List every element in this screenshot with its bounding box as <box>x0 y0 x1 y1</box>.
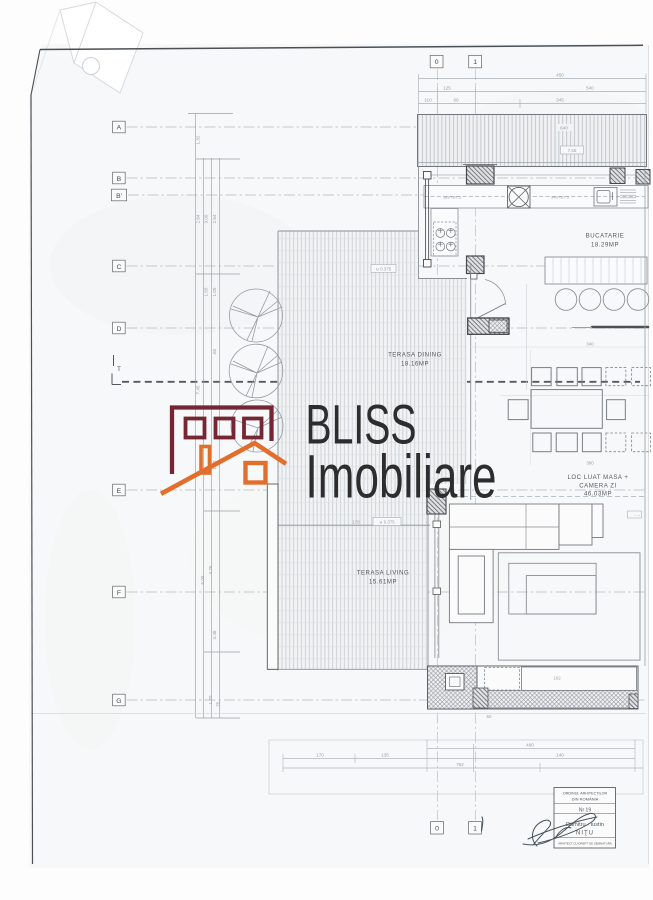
svg-text:B: B <box>117 176 122 183</box>
svg-text:− −: − − <box>635 512 641 517</box>
svg-text:0: 0 <box>435 59 439 66</box>
svg-text:C: C <box>116 264 121 271</box>
svg-text:1.05: 1.05 <box>212 287 217 296</box>
svg-text:540: 540 <box>586 86 594 91</box>
svg-text:18.29MP: 18.29MP <box>591 243 619 249</box>
svg-text:F: F <box>117 590 121 597</box>
svg-text:0: 0 <box>435 825 439 832</box>
svg-text:A: A <box>117 125 122 132</box>
svg-text:135: 135 <box>381 753 389 758</box>
svg-text:5.05: 5.05 <box>200 575 205 584</box>
svg-text:60: 60 <box>453 98 459 103</box>
svg-text:E: E <box>117 488 122 495</box>
svg-text:2.64: 2.64 <box>196 214 201 223</box>
svg-text:1.55: 1.55 <box>204 287 209 296</box>
svg-text:380: 380 <box>586 461 594 466</box>
svg-text:340: 340 <box>586 342 594 347</box>
svg-text:CAMERA ZI: CAMERA ZI <box>579 484 617 490</box>
svg-text:4.48: 4.48 <box>212 630 217 639</box>
svg-text:⊍ 0.375: ⊍ 0.375 <box>376 267 392 272</box>
svg-text:1: 1 <box>473 59 477 66</box>
svg-text:2.64: 2.64 <box>212 214 217 223</box>
svg-text:185/78/7.5: 185/78/7.5 <box>443 196 461 200</box>
svg-text:450: 450 <box>556 73 564 78</box>
svg-text:ARHITECT CU DREPT DE SEMNATURA: ARHITECT CU DREPT DE SEMNATURA <box>558 842 612 846</box>
svg-text:LOC LUAT MASA +: LOC LUAT MASA + <box>568 475 629 481</box>
svg-text:640: 640 <box>560 126 568 131</box>
svg-text:TERASA DINING: TERASA DINING <box>388 353 442 359</box>
svg-text:G: G <box>116 698 121 705</box>
svg-text:DIN ROMÂNIA: DIN ROMÂNIA <box>572 797 599 802</box>
svg-text:110: 110 <box>424 98 432 103</box>
svg-text:50: 50 <box>487 714 492 719</box>
svg-text:T: T <box>117 366 121 373</box>
svg-text:7.45: 7.45 <box>196 385 201 394</box>
svg-text:D: D <box>116 326 121 333</box>
svg-text:140: 140 <box>556 753 564 758</box>
svg-text:340/78/7.5: 340/78/7.5 <box>551 196 569 200</box>
svg-text:125: 125 <box>443 86 451 91</box>
svg-text:162: 162 <box>553 676 561 681</box>
svg-text:NIŢU: NIŢU <box>576 831 594 837</box>
svg-text:46.03MP: 46.03MP <box>584 492 612 498</box>
svg-text:490: 490 <box>526 743 534 748</box>
svg-text:762: 762 <box>456 762 464 767</box>
svg-text:⊍ 0.375: ⊍ 0.375 <box>379 520 395 525</box>
svg-text:1.32: 1.32 <box>196 135 201 144</box>
svg-text:178: 178 <box>352 520 360 525</box>
svg-text:Imobiliare: Imobiliare <box>306 443 497 511</box>
svg-text:345: 345 <box>556 98 564 103</box>
svg-text:4.75: 4.75 <box>208 565 213 574</box>
svg-text:.60: .60 <box>212 348 217 355</box>
svg-text:Nr 19: Nr 19 <box>579 808 591 814</box>
svg-text:170: 170 <box>316 753 324 758</box>
svg-text:B': B' <box>116 193 122 200</box>
svg-text:7.55: 7.55 <box>568 148 577 153</box>
svg-text:18.16MP: 18.16MP <box>401 362 429 368</box>
svg-text:TERASA LIVING: TERASA LIVING <box>357 571 410 577</box>
svg-text:.75: .75 <box>216 701 221 708</box>
svg-text:1: 1 <box>473 825 477 832</box>
svg-text:BUCATARIE: BUCATARIE <box>586 234 625 240</box>
svg-text:3.00: 3.00 <box>204 214 209 223</box>
svg-text:15.61MP: 15.61MP <box>369 580 397 586</box>
svg-text:ORDINUL ARHITECTILOR: ORDINUL ARHITECTILOR <box>563 792 608 796</box>
svg-text:1.70: 1.70 <box>208 695 213 704</box>
